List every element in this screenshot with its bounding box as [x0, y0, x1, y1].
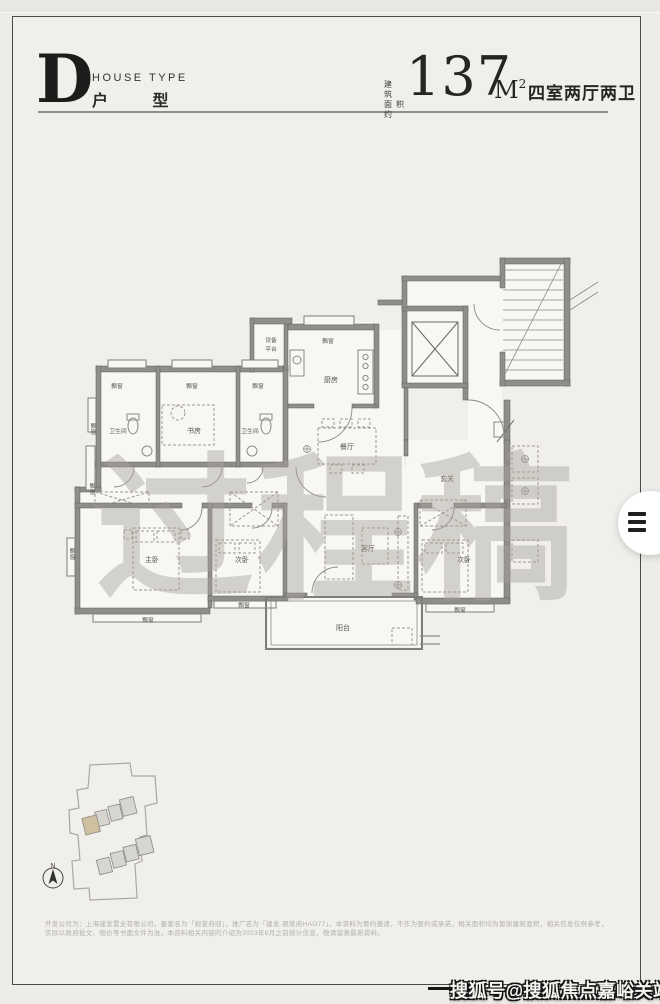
brochure-page: { "header": { "type_letter": "D", "type_… — [0, 0, 660, 1004]
bay-label: 飘窗 — [142, 616, 154, 624]
bay-label: 飘窗 — [186, 382, 198, 390]
bay-label: 飘窗 — [454, 606, 466, 614]
bay-label: 飘窗 — [238, 601, 250, 609]
bay-label: 飘窗 — [322, 337, 334, 345]
equipment-platform-label: 平台 — [265, 345, 277, 353]
north-label: N — [50, 863, 55, 870]
sohu-watermark: 搜狐号@搜狐焦点嘉峪关站 — [450, 977, 660, 1003]
bay-label: 飘窗 — [88, 483, 95, 496]
balcony-label: 阳台 — [336, 623, 350, 632]
site-boundary — [69, 763, 157, 900]
dining-label: 餐厅 — [340, 442, 354, 451]
bathroom-label: 卫生间 — [109, 427, 127, 435]
master-bedroom-label: 主卧 — [145, 555, 159, 564]
compass: N — [43, 863, 63, 888]
study-label: 书房 — [187, 426, 201, 435]
living-room-label: 客厅 — [361, 544, 375, 553]
foyer-label: 玄关 — [440, 474, 454, 483]
disclaimer-line2: 实际以政府批文、物价等书面文件为准。本资料相关内容的介绍为2023年6月之前统计… — [45, 929, 623, 938]
equipment-platform-label: 设备 — [265, 336, 277, 344]
bedroom-label: 次卧 — [235, 555, 249, 564]
bay-label: 飘窗 — [68, 548, 75, 561]
bedroom-label: 次卧 — [457, 555, 471, 564]
bay-label: 飘窗 — [111, 382, 123, 390]
disclaimer: 开发公司为：上海建发置业有限公司，备案名为「观棠府邸」，推广名为「建发·观棠府H… — [45, 920, 623, 938]
bathroom-label: 卫生间 — [241, 427, 259, 435]
bay-label: 飘窗 — [252, 382, 264, 390]
site-plan: N — [35, 756, 205, 916]
hamburger-icon — [628, 512, 646, 536]
kitchen-label: 厨房 — [324, 375, 338, 384]
bay-label: 飘窗 — [89, 423, 96, 436]
disclaimer-line1: 开发公司为：上海建发置业有限公司，备案名为「观棠府邸」，推广名为「建发·观棠府H… — [45, 920, 623, 929]
watermark-line — [428, 987, 452, 990]
